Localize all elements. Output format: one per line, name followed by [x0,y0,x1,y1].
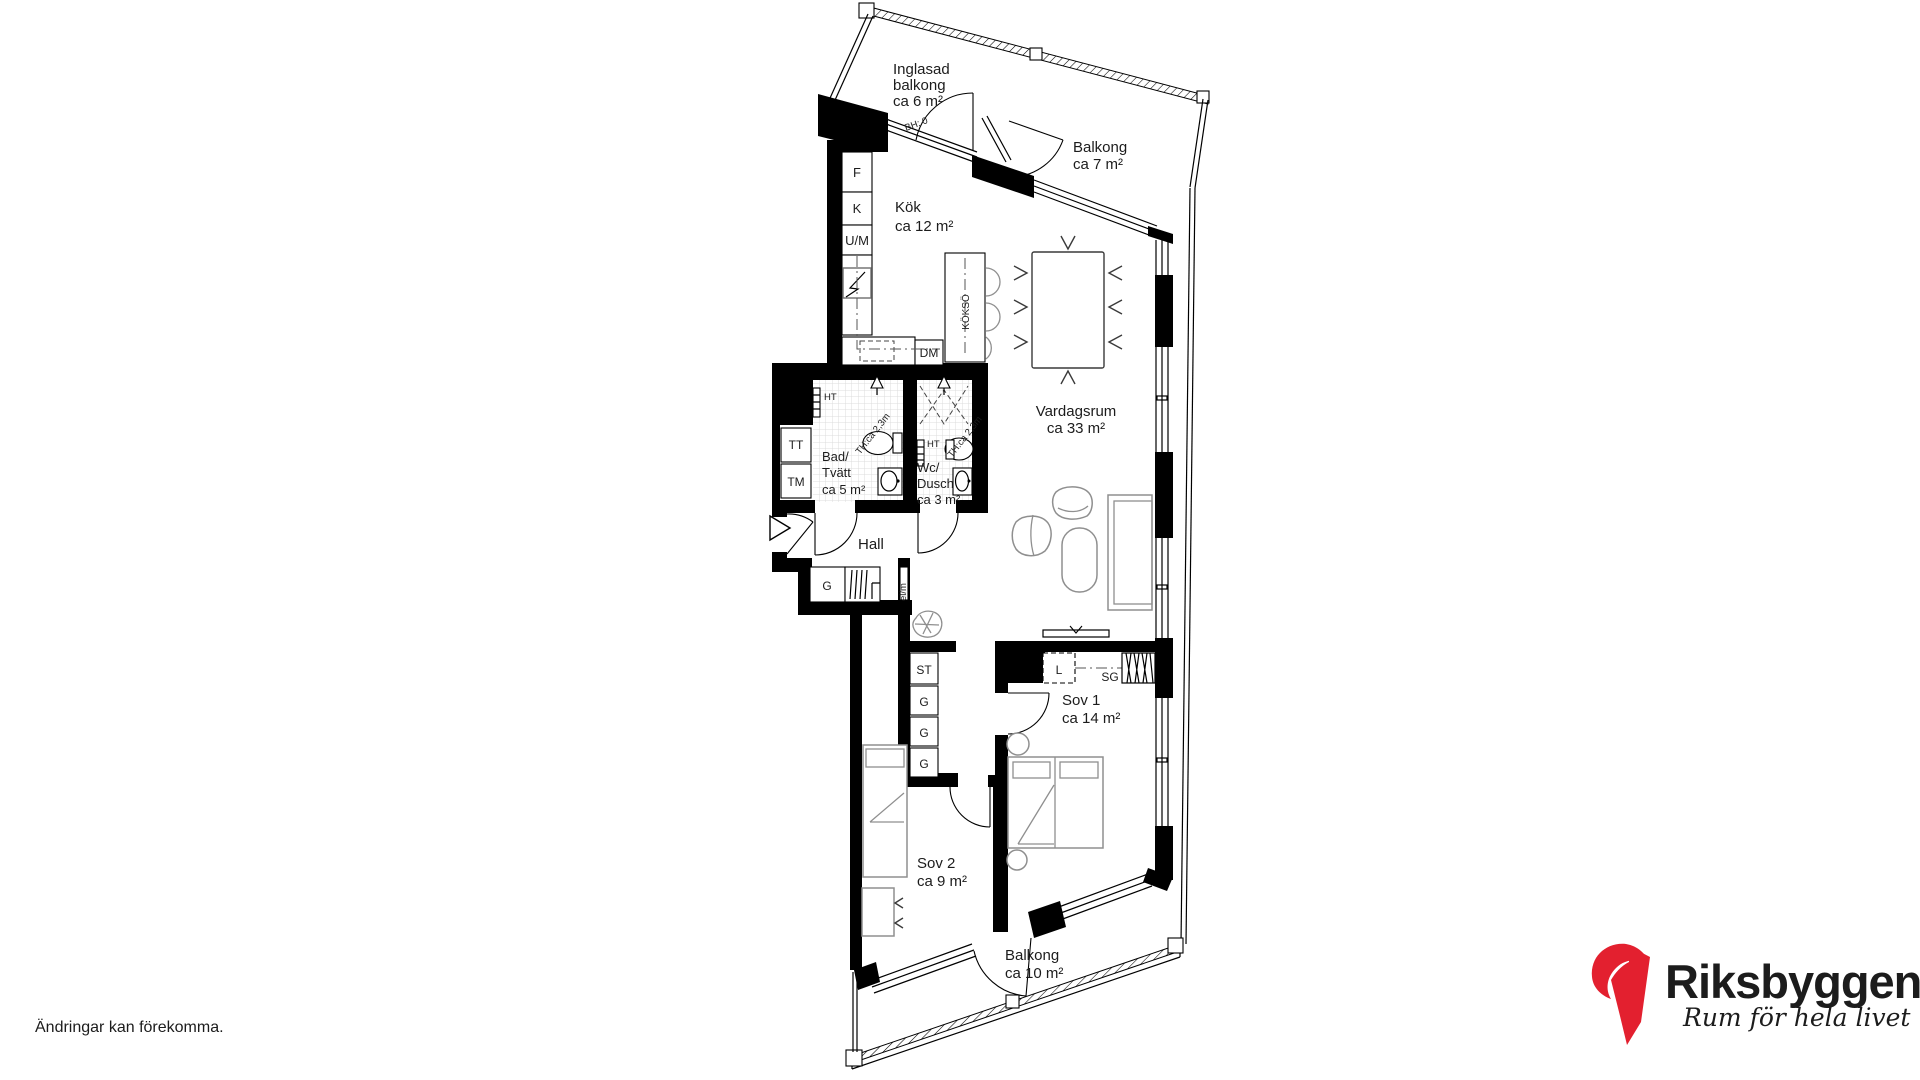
plant-icon [913,611,942,637]
bad-door [815,513,857,555]
towel-warmer-wc-label: HT [927,439,940,450]
wc-door [918,513,958,553]
closet-st-label: ST [916,663,932,677]
sliding-wardrobe-label: SG [1101,670,1118,684]
balkong7-glass-edges [1190,99,1208,188]
sink-bad [878,468,902,495]
closet-l-label: L [1056,663,1063,677]
kitchen-island-label: KÖKSÖ [960,294,972,330]
sov1-furniture [1007,733,1103,870]
inglasad-balkong-label2: balkong [893,77,946,94]
sov2-door [950,787,990,827]
hall-wardrobe-hatched [845,567,880,602]
sofa [1108,495,1152,610]
closet-g2-label: G [919,726,928,740]
vardagsrum-label: Vardagsrum [1036,403,1117,420]
entrance-arrow-icon [770,516,790,540]
inglasad-balkong-label: Inglasad [893,61,950,78]
dining-table [1014,236,1122,384]
balkong7-label: Balkong [1073,139,1127,156]
armchair-1 [1053,487,1093,519]
sov2-furniture [862,745,907,936]
disclaimer-text: Ändringar kan förekomma. [35,1018,224,1036]
towel-warmer-bad-label: HT [824,392,837,403]
nightstand-1 [1007,733,1029,755]
dining-chair-top [1061,236,1075,249]
dining-chairs-left [1014,266,1027,349]
closet-g3-label: G [919,757,928,771]
riksbyggen-tagline: Rum för hela livet [1682,1003,1911,1032]
kok-area: ca 12 m² [895,218,953,235]
entrance-door [770,514,813,554]
sov1-label: Sov 1 [1062,692,1100,709]
closet-g1-label: G [919,695,928,709]
bad-area: ca 5 m² [822,482,866,497]
kitchen-balcony-window [886,119,977,163]
inglasad-balkong-glass-left [826,14,873,109]
floorplan-drawing: Inglasad balkong ca 6 m² Balkong ca 7 m²… [0,0,1920,1080]
riksbyggen-ribbon-icon [1592,944,1650,1045]
armchair-2 [1012,515,1051,556]
balcony-divider-wall [982,116,1011,162]
sov2-label: Sov 2 [917,855,955,872]
inglasad-balkong-area: ca 6 m² [893,93,943,110]
bar-stools [986,268,1000,359]
sov1-balcony-window [1056,874,1152,920]
wc-label: Wc/ [917,460,940,475]
desk [862,888,903,936]
dishwasher-label: DM [920,346,939,360]
nightstand-2 [1007,850,1027,870]
freezer-label: F [853,165,861,180]
washer-label: TM [787,475,804,489]
coffee-table [1062,528,1097,592]
balkong10-area: ca 10 m² [1005,965,1063,982]
balkong7-door [1009,121,1063,177]
kitchen-fixtures [842,152,1000,371]
riksbyggen-wordmark: Riksbyggen [1665,955,1920,1008]
wc-area: ca 3 m² [917,492,961,507]
livingroom-north-window [1034,180,1157,238]
hall-wardrobe-label: G [822,579,831,593]
right-side-glass-screen [1181,188,1195,944]
oven-micro-label: U/M [845,233,869,248]
single-bed [863,745,907,877]
dining-chair-bottom [1061,371,1075,384]
sov2-area: ca 9 m² [917,873,967,890]
sill-height-label: BH: 0 [903,115,929,133]
wc-label2: Dusch [917,476,954,491]
sov2-balcony-window [870,944,976,993]
sov1-door [1008,693,1049,734]
balkong7-area: ca 7 m² [1073,156,1123,173]
floorplan-page: Inglasad balkong ca 6 m² Balkong ca 7 m²… [0,0,1920,1080]
fridge-label: K [853,201,862,216]
kok-label: Kök [895,199,921,216]
electrical-panel-label: el/m [898,583,909,601]
towel-warmer-bad-icon [813,388,820,417]
bad-label2: Tvätt [822,465,851,480]
riksbyggen-logo: Riksbyggen Rum för hela livet [1592,944,1920,1045]
hall-label: Hall [858,536,884,553]
vardagsrum-area: ca 33 m² [1047,420,1105,437]
dryer-label: TT [789,438,804,452]
sliding-wardrobe-sg [1122,653,1155,683]
balkong10-label: Balkong [1005,947,1059,964]
kitchen-island [945,253,1000,362]
sov1-area: ca 14 m² [1062,710,1120,727]
bad-label: Bad/ [822,449,849,464]
dining-chairs-right [1109,266,1122,349]
sink-wc [953,468,972,495]
double-bed [1008,757,1103,848]
